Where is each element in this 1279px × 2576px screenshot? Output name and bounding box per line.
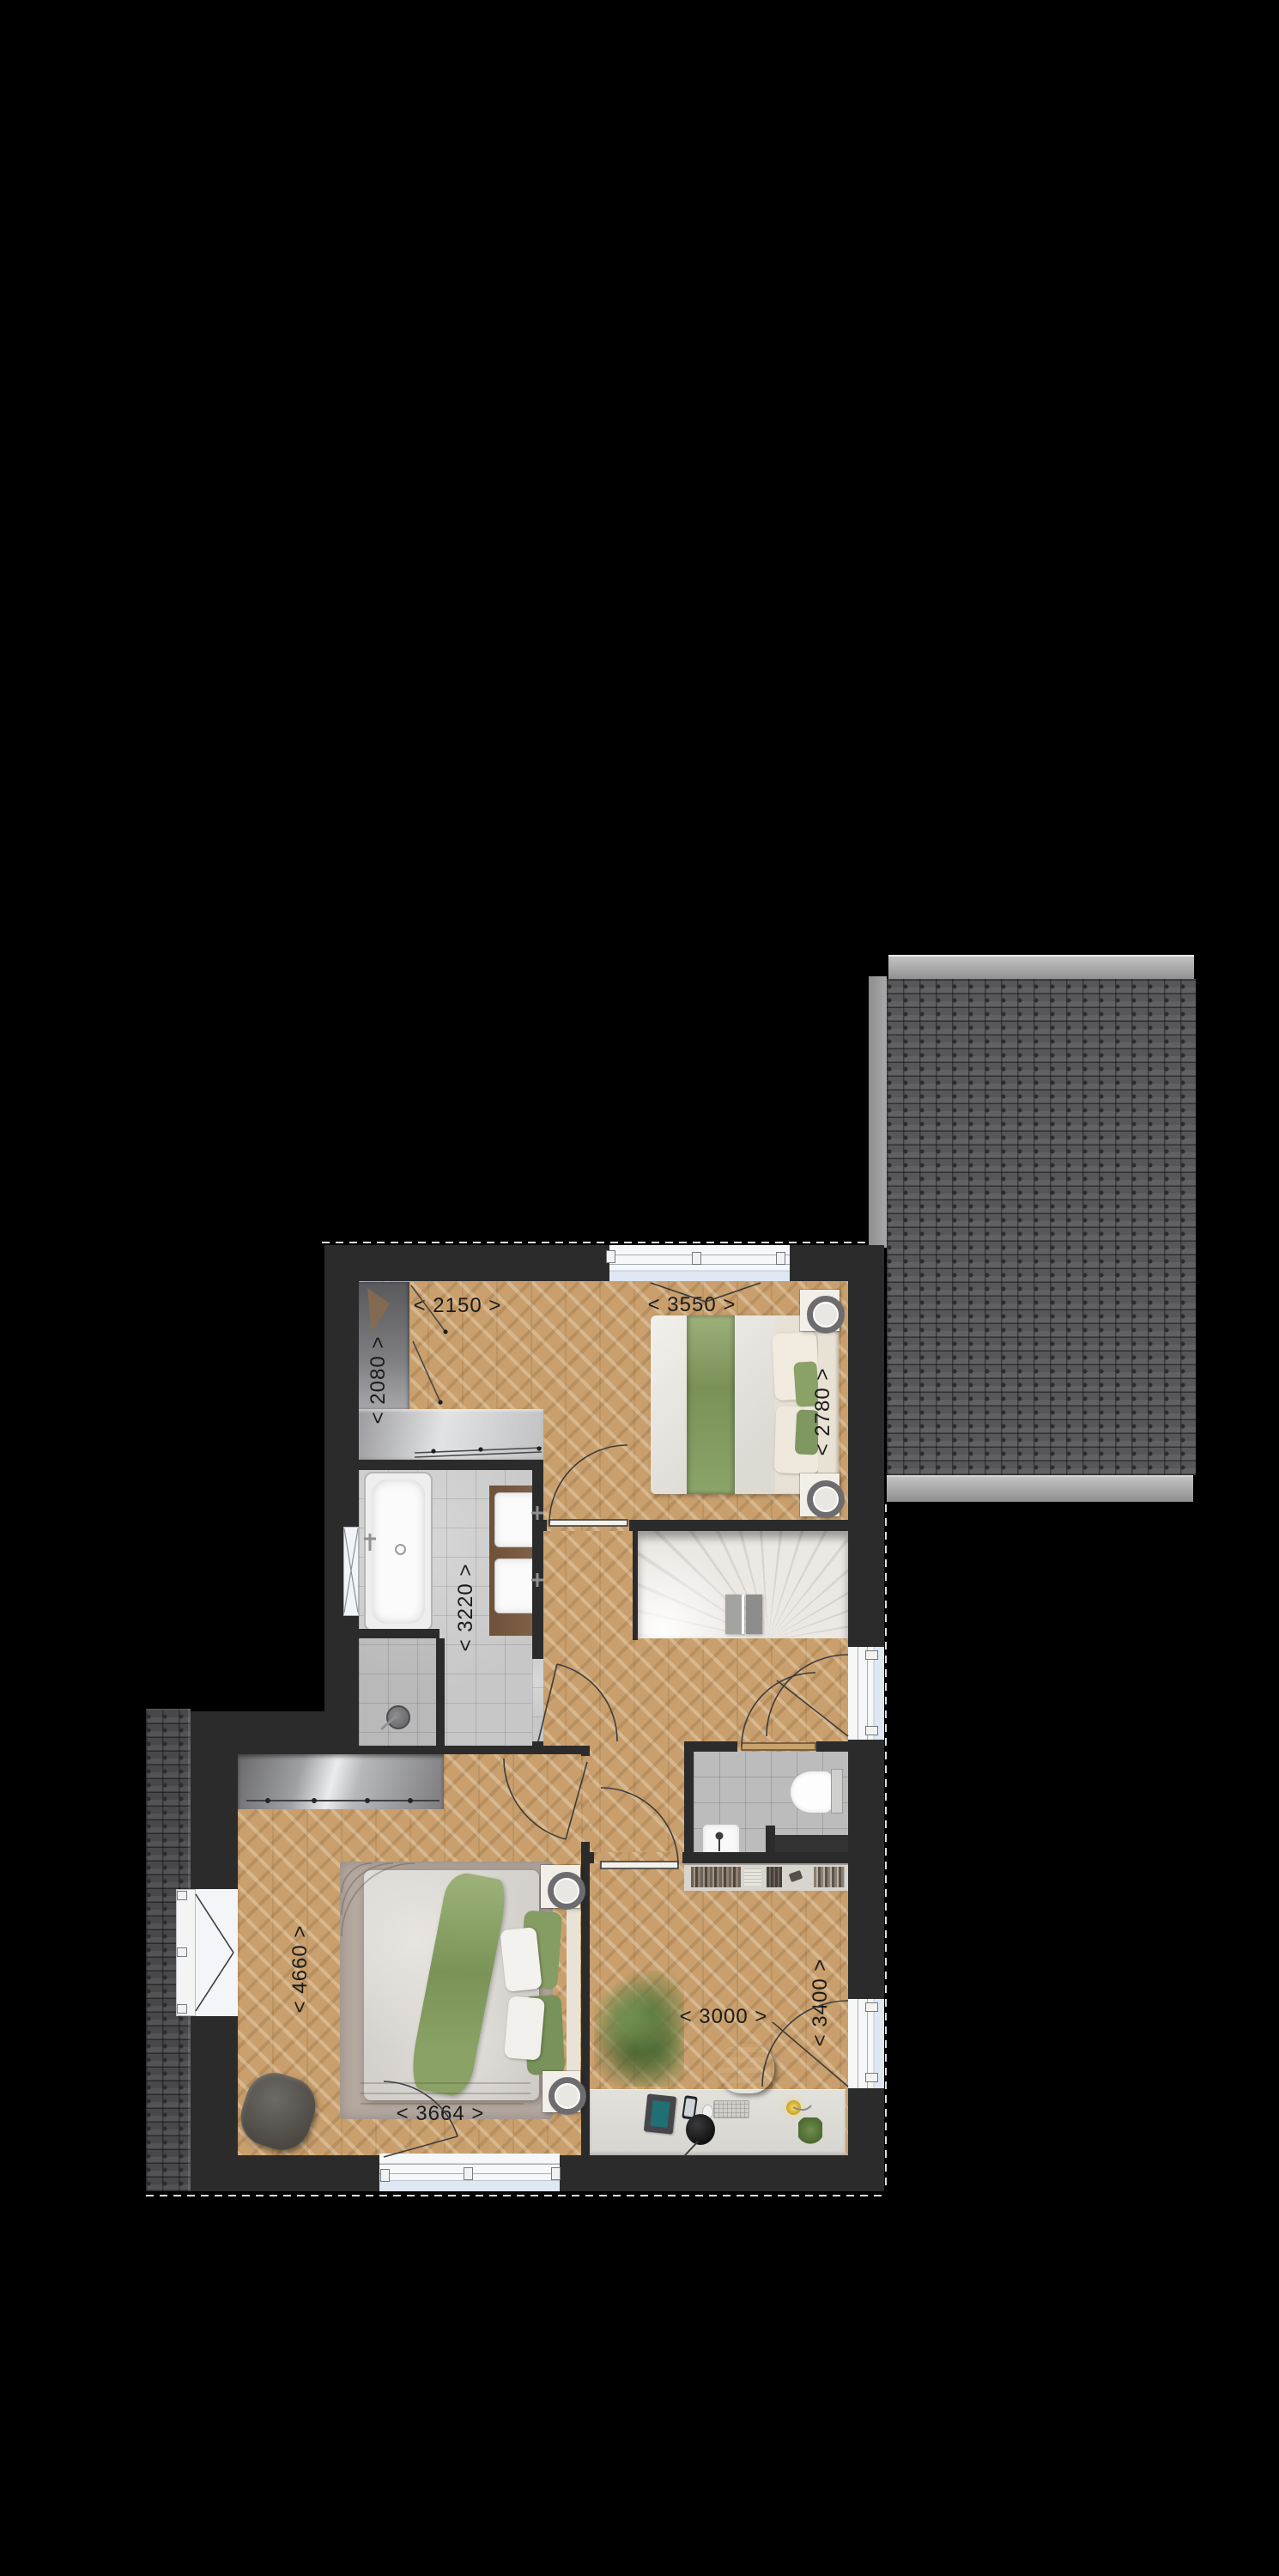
stair-newel-2 bbox=[746, 1595, 762, 1634]
window-bottom-handle-2 bbox=[464, 2167, 473, 2180]
bathtub bbox=[364, 1472, 433, 1631]
window-bottom-handle-3 bbox=[551, 2167, 561, 2180]
bathroom-wall-stub bbox=[359, 1629, 439, 1638]
bathtub-drain bbox=[395, 1544, 406, 1555]
phone-screen bbox=[684, 2098, 696, 2117]
shower-head bbox=[386, 1705, 410, 1729]
bed-right-runner bbox=[687, 1315, 735, 1494]
window-right-hall-handle-2 bbox=[865, 1726, 878, 1735]
dimension-bedroom-left-width: < 3664 > bbox=[376, 2103, 505, 2125]
dimension-dressing-width: < 2150 > bbox=[393, 1295, 522, 1317]
stair-newel-1 bbox=[725, 1595, 744, 1634]
roof-edge-strip-left bbox=[869, 976, 887, 1248]
toilet-bowl bbox=[790, 1771, 836, 1814]
roof-ridge-top bbox=[888, 955, 1194, 981]
dimension-study-width: < 3000 > bbox=[659, 2006, 788, 2028]
bedroom-right-door-opening bbox=[547, 1520, 629, 1531]
window-right-hall-handle-1 bbox=[865, 1650, 878, 1660]
window-top-handle-2 bbox=[692, 1252, 701, 1265]
desk-plant-small bbox=[798, 2117, 822, 2145]
french-door-handle-3 bbox=[177, 2004, 187, 2014]
lamp-right-2 bbox=[807, 1480, 845, 1518]
bathroom-wall-divider bbox=[436, 1638, 445, 1747]
wardrobe-bedroom-left bbox=[238, 1754, 444, 1809]
books-group-4 bbox=[814, 1867, 845, 1887]
bedroom-left-wall-top bbox=[238, 1746, 590, 1754]
bed-left-pillow-white-2 bbox=[504, 1996, 545, 2060]
bookshelf bbox=[684, 1863, 848, 1891]
tablet-screen bbox=[650, 2100, 670, 2128]
toilet-wall-left bbox=[684, 1741, 694, 1863]
bedroom-left-door-opening bbox=[581, 1756, 590, 1842]
desk-keyboard bbox=[713, 2100, 749, 2118]
window-bottom-handle-1 bbox=[380, 2169, 390, 2182]
books-group-2 bbox=[744, 1868, 761, 1886]
toilet-cistern bbox=[831, 1769, 843, 1814]
dimension-bedroom-right-depth: < 2780 > bbox=[812, 1347, 834, 1476]
bathroom-door-opening bbox=[532, 1659, 543, 1741]
french-door-handle-2 bbox=[177, 1947, 187, 1957]
bed-left-headboard bbox=[567, 1896, 580, 2090]
bathroom-wall-top bbox=[359, 1460, 543, 1470]
window-right-study-handle-1 bbox=[865, 2002, 878, 2012]
desk-tablet bbox=[644, 2093, 676, 2134]
dimension-bathroom-depth: < 3220 > bbox=[455, 1543, 477, 1672]
lamp-left-1 bbox=[548, 1872, 585, 1910]
bed-left-pillow-white-1 bbox=[500, 1927, 542, 1992]
office-chair bbox=[718, 2044, 774, 2093]
desk-object-dark bbox=[686, 2114, 715, 2145]
window-top-handle-3 bbox=[776, 1252, 785, 1265]
roof-section-right bbox=[869, 955, 1196, 1500]
french-door-left-threshold bbox=[196, 1889, 238, 2016]
dimension-bedroom-right-width: < 3550 > bbox=[627, 1294, 756, 1316]
plant-large bbox=[594, 1971, 684, 2087]
roof-tile-field bbox=[887, 979, 1196, 1475]
books-group-1 bbox=[691, 1867, 741, 1887]
books-group-3 bbox=[767, 1867, 782, 1887]
dimension-dressing-depth: < 2080 > bbox=[367, 1315, 390, 1444]
dimension-bedroom-left-depth: < 4660 > bbox=[289, 1905, 312, 2033]
dimension-study-depth: < 3400 > bbox=[809, 1938, 832, 2067]
french-door-handle-1 bbox=[177, 1891, 187, 1900]
window-bathroom-left bbox=[343, 1527, 359, 1616]
toilet-door-opening bbox=[737, 1741, 816, 1752]
window-top-handle-1 bbox=[606, 1250, 615, 1263]
floor-plan-canvas: < 2150 > < 2080 > < 3550 > < 2780 > < 32… bbox=[0, 0, 1279, 2576]
lamp-left-2 bbox=[549, 2077, 586, 2115]
window-right-study-handle-2 bbox=[865, 2073, 878, 2082]
roof-ridge-bottom bbox=[887, 1475, 1193, 1502]
study-door-opening bbox=[594, 1852, 682, 1863]
desk-lamp-glow bbox=[786, 2100, 801, 2115]
shelf-item bbox=[789, 1870, 803, 1882]
lamp-right-1 bbox=[807, 1296, 845, 1334]
shower-floor-shade bbox=[359, 1638, 439, 1747]
